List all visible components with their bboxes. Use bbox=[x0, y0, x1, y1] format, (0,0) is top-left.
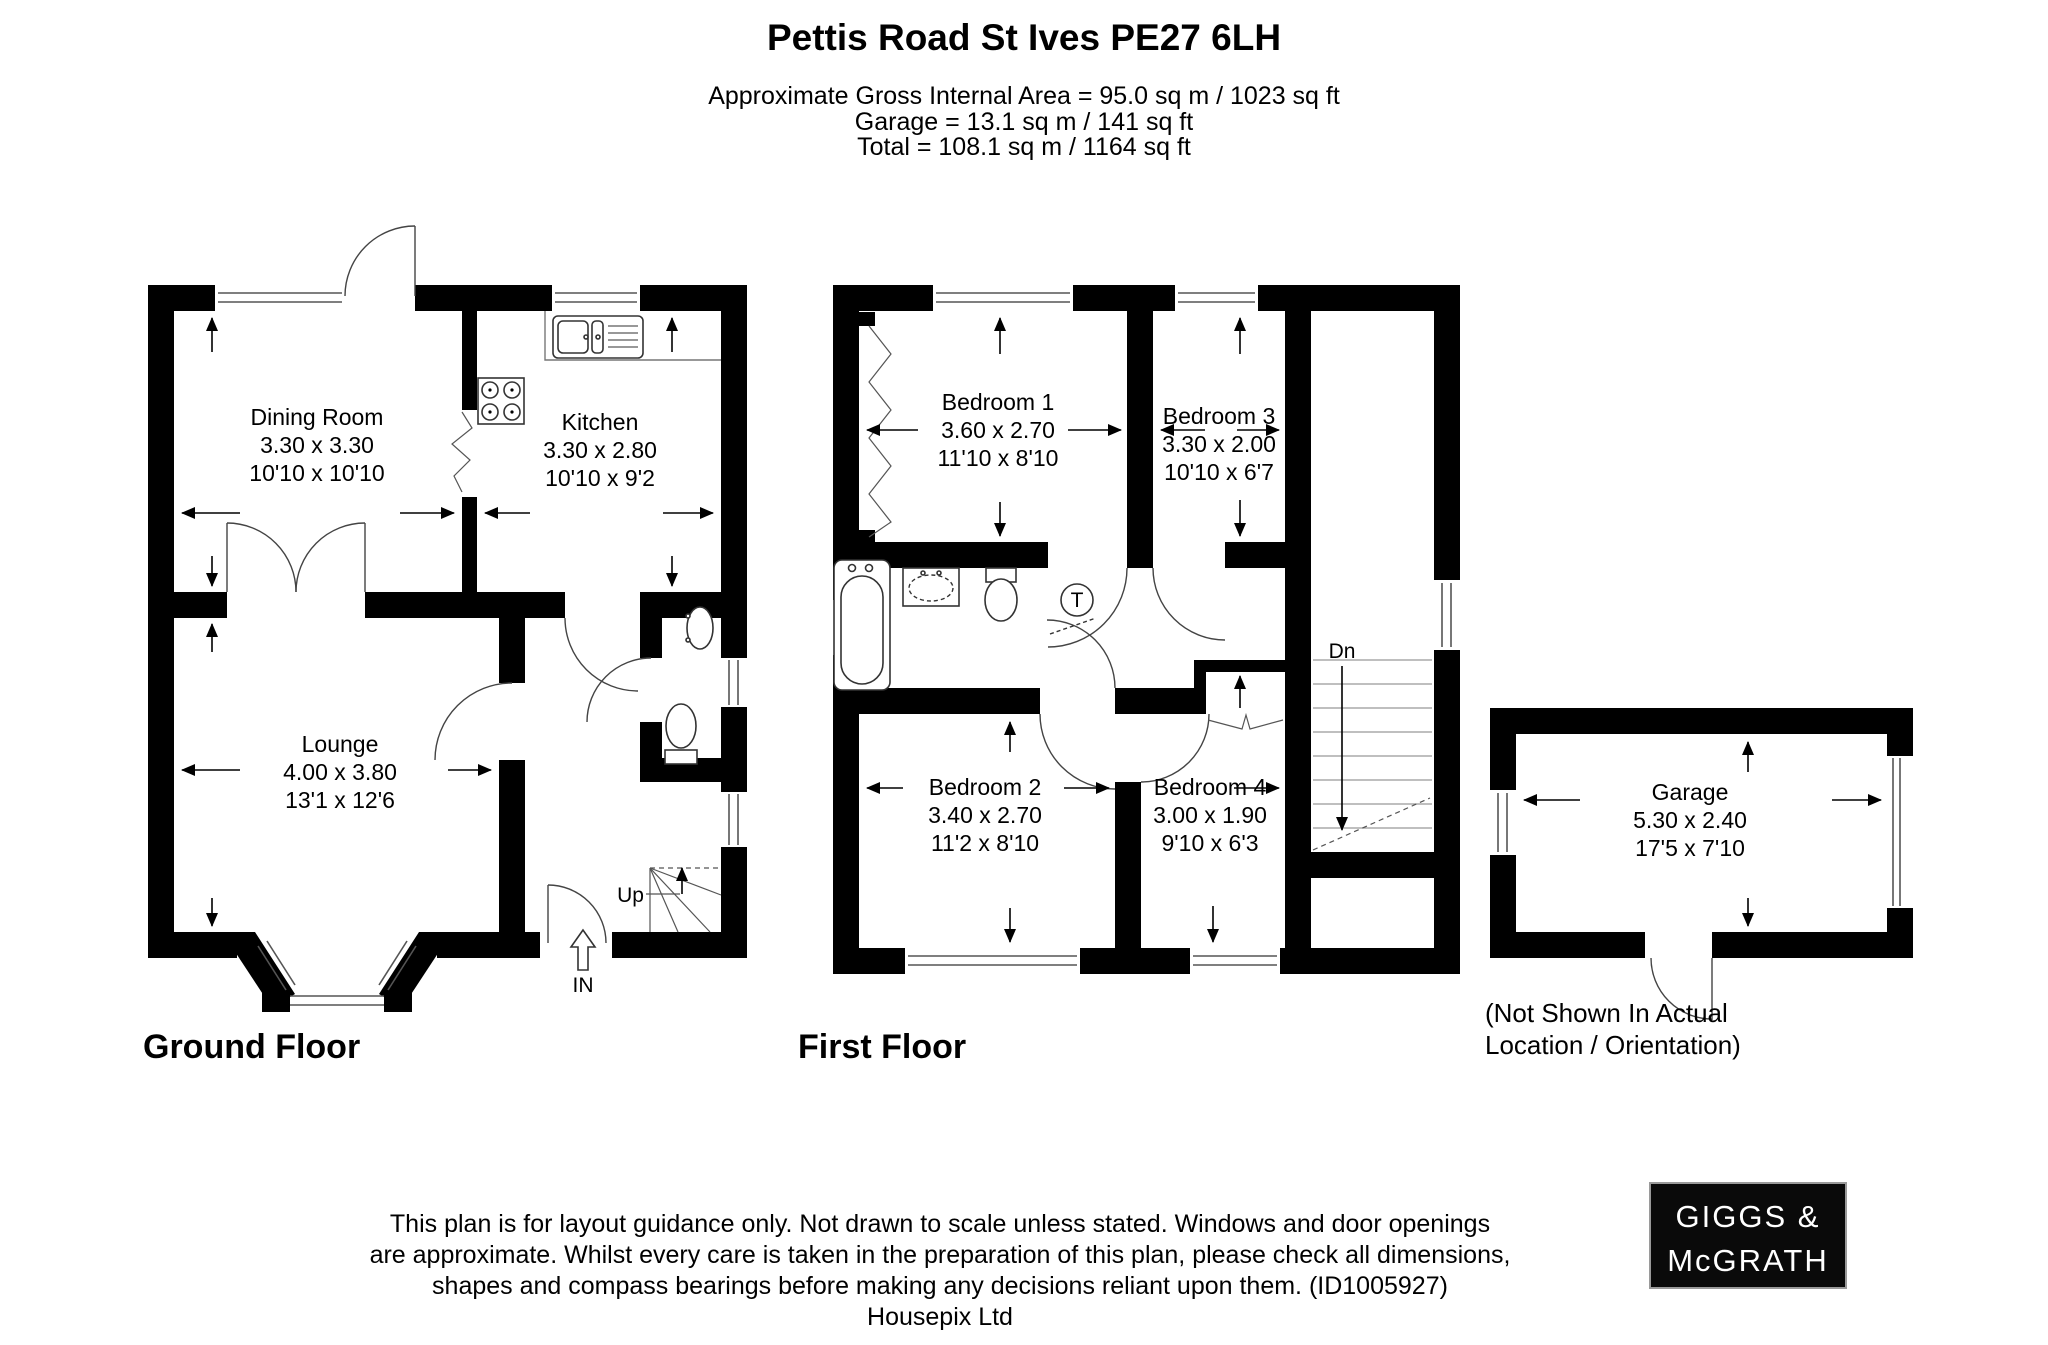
gross-area-line: Approximate Gross Internal Area = 95.0 s… bbox=[708, 82, 1340, 110]
garage-imperial: 17'5 x 7'10 bbox=[1635, 835, 1745, 861]
bedroom3-imperial: 10'10 x 6'7 bbox=[1164, 459, 1274, 485]
entrance-label: IN bbox=[573, 974, 594, 997]
room-label-lounge: Lounge 4.00 x 3.80 13'1 x 12'6 bbox=[283, 731, 397, 813]
garage-note: (Not Shown In Actual Location / Orientat… bbox=[1485, 998, 1741, 1060]
dining-metric: 3.30 x 3.30 bbox=[260, 432, 374, 458]
logo-line2: McGRATH bbox=[1667, 1243, 1829, 1278]
lounge-metric: 4.00 x 3.80 bbox=[283, 759, 397, 785]
garage-dimension-arrows bbox=[1524, 742, 1881, 926]
gf-stairs bbox=[646, 868, 721, 932]
first-floor-plan: T Dn bbox=[798, 285, 1460, 1066]
wc-toilet-icon bbox=[665, 704, 697, 764]
bedroom4-imperial: 9'10 x 6'3 bbox=[1161, 830, 1258, 856]
garage-wall-top bbox=[1490, 708, 1913, 734]
kitchen-metric: 3.30 x 2.80 bbox=[543, 437, 657, 463]
ff-closet-door bbox=[1208, 715, 1283, 729]
stove-icon bbox=[478, 378, 524, 424]
stairs-up-label: Up bbox=[617, 884, 644, 907]
bedroom2-metric: 3.40 x 2.70 bbox=[928, 802, 1042, 828]
gf-french-doors bbox=[227, 523, 365, 592]
ff-wall-top bbox=[833, 285, 1460, 311]
ff-bed4-door bbox=[1141, 714, 1209, 782]
ff-closet-left bbox=[1194, 660, 1206, 714]
bedroom3-metric: 3.30 x 2.00 bbox=[1162, 431, 1276, 457]
room-label-kitchen: Kitchen 3.30 x 2.80 10'10 x 9'2 bbox=[543, 409, 657, 491]
ff-wall-bed1-bed3 bbox=[1127, 311, 1153, 568]
garage-name: Garage bbox=[1652, 779, 1729, 805]
agency-logo: GIGGS & McGRATH bbox=[1650, 1183, 1846, 1288]
bedroom4-metric: 3.00 x 1.90 bbox=[1153, 802, 1267, 828]
room-label-bedroom3: Bedroom 3 3.30 x 2.00 10'10 x 6'7 bbox=[1162, 403, 1276, 485]
bedroom2-imperial: 11'2 x 8'10 bbox=[931, 830, 1039, 856]
toilet-icon bbox=[985, 568, 1017, 621]
bedroom2-name: Bedroom 2 bbox=[929, 774, 1042, 800]
room-label-dining: Dining Room 3.30 x 3.30 10'10 x 10'10 bbox=[249, 404, 384, 486]
wardrobe-icon bbox=[859, 312, 891, 544]
footer-disclaimer: This plan is for layout guidance only. N… bbox=[370, 1210, 1511, 1331]
floorplan-canvas: Pettis Road St Ives PE27 6LH Approximate… bbox=[0, 0, 2048, 1345]
dining-name: Dining Room bbox=[251, 404, 384, 430]
ground-floor-title: Ground Floor bbox=[143, 1028, 360, 1066]
ff-bed3-door bbox=[1153, 568, 1225, 640]
gf-wall-lounge-hall bbox=[499, 618, 525, 932]
garage-note-line2: Location / Orientation) bbox=[1485, 1030, 1741, 1060]
room-label-bedroom1: Bedroom 1 3.60 x 2.70 11'10 x 8'10 bbox=[938, 389, 1059, 471]
floorplan-page: Pettis Road St Ives PE27 6LH Approximate… bbox=[0, 0, 2048, 1345]
ff-bathroom-door bbox=[1047, 620, 1115, 688]
disclaimer-line4: Housepix Ltd bbox=[867, 1303, 1013, 1331]
bedroom1-name: Bedroom 1 bbox=[942, 389, 1055, 415]
lounge-name: Lounge bbox=[302, 731, 379, 757]
garage-plan: Garage 5.30 x 2.40 17'5 x 7'10 (Not Show… bbox=[1485, 708, 1913, 1060]
room-label-bedroom4: Bedroom 4 3.00 x 1.90 9'10 x 6'3 bbox=[1153, 774, 1267, 856]
gf-wall-left bbox=[148, 285, 174, 958]
ff-stairs bbox=[1313, 660, 1432, 850]
gf-kitchen-door bbox=[565, 618, 638, 691]
kitchen-sink-icon bbox=[553, 316, 643, 358]
header: Pettis Road St Ives PE27 6LH Approximate… bbox=[708, 17, 1340, 161]
disclaimer-line3: shapes and compass bearings before makin… bbox=[432, 1272, 1448, 1300]
gf-wall-right bbox=[721, 285, 747, 958]
kitchen-imperial: 10'10 x 9'2 bbox=[545, 465, 655, 491]
disclaimer-line1: This plan is for layout guidance only. N… bbox=[390, 1210, 1490, 1238]
page-title: Pettis Road St Ives PE27 6LH bbox=[767, 17, 1281, 58]
garage-metric: 5.30 x 2.40 bbox=[1633, 807, 1747, 833]
total-area-line: Total = 108.1 sq m / 1164 sq ft bbox=[857, 133, 1191, 161]
bedroom4-name: Bedroom 4 bbox=[1154, 774, 1267, 800]
logo-line1: GIGGS & bbox=[1676, 1199, 1821, 1234]
tank-label: T bbox=[1071, 589, 1084, 612]
first-floor-title: First Floor bbox=[798, 1028, 966, 1066]
room-label-garage: Garage 5.30 x 2.40 17'5 x 7'10 bbox=[1633, 779, 1747, 861]
bedroom1-imperial: 11'10 x 8'10 bbox=[938, 445, 1059, 471]
wc-basin-icon bbox=[686, 607, 713, 649]
ff-bed2-door bbox=[1040, 714, 1115, 789]
kitchen-name: Kitchen bbox=[562, 409, 639, 435]
ff-closet-top bbox=[1194, 660, 1285, 672]
garage-area-line: Garage = 13.1 sq m / 141 sq ft bbox=[855, 108, 1193, 136]
room-label-bedroom2: Bedroom 2 3.40 x 2.70 11'2 x 8'10 bbox=[928, 774, 1042, 856]
ff-wall-stairs-bottom bbox=[1311, 852, 1434, 878]
ground-floor-plan: Up IN Dining Room 3.30 x 3.30 10'10 x 10… bbox=[143, 226, 747, 1066]
disclaimer-line2: are approximate. Whilst every care is ta… bbox=[370, 1241, 1511, 1269]
lounge-imperial: 13'1 x 12'6 bbox=[285, 787, 395, 813]
stairs-down-label: Dn bbox=[1329, 640, 1356, 663]
ff-wall-stairwell bbox=[1285, 311, 1311, 974]
bath-icon bbox=[834, 560, 890, 690]
dining-imperial: 10'10 x 10'10 bbox=[249, 460, 384, 486]
basin-icon bbox=[903, 568, 959, 606]
bedroom1-metric: 3.60 x 2.70 bbox=[941, 417, 1055, 443]
garage-note-line1: (Not Shown In Actual bbox=[1485, 998, 1728, 1028]
bedroom3-name: Bedroom 3 bbox=[1163, 403, 1276, 429]
